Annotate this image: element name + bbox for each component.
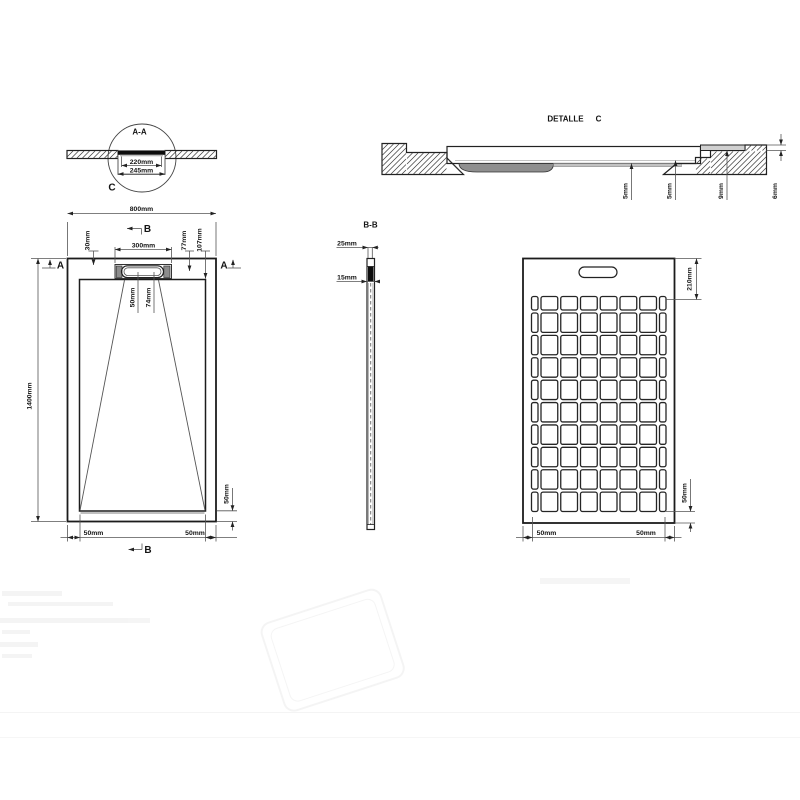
rib-cell — [660, 335, 667, 354]
dim-77-arrow — [188, 266, 192, 272]
rib-cell — [532, 313, 539, 332]
watermark-text-line — [0, 618, 150, 623]
shower-tray-drawing: A-A 220mm 245mm C DETALLE C 5mm 5mm — [0, 0, 800, 800]
drain-channel-thin — [554, 164, 682, 167]
rib-cell — [600, 297, 617, 311]
rib-cell — [532, 358, 539, 377]
dim-6mm — [767, 134, 787, 161]
rib-cell — [660, 425, 667, 444]
hatch-line — [402, 170, 406, 174]
tray-inner-floor — [80, 280, 206, 512]
rib-cell — [620, 335, 637, 354]
dim-label-30mm: 30mm — [85, 231, 92, 251]
rib-cell — [620, 297, 637, 311]
hatch-line — [763, 147, 767, 151]
rib-cell — [581, 425, 598, 444]
dim-label-9mm: 9mm — [718, 183, 725, 199]
dim-arrowhead — [231, 260, 235, 266]
hatch-line — [181, 151, 188, 158]
hatch-line — [766, 174, 767, 175]
dim-label-50mm-br: 50mm — [185, 530, 205, 537]
detail-callout-c: C — [108, 183, 115, 194]
rib-cell — [541, 358, 558, 377]
drain-slot — [579, 267, 617, 278]
dim-50-side-bv-arrows — [689, 506, 693, 529]
hatch-line — [99, 151, 106, 158]
dim-arrowhead — [689, 523, 693, 529]
dim-arrowhead — [92, 260, 96, 266]
dim-label-25mm: 25mm — [337, 240, 357, 247]
section-a-left-arrow — [48, 260, 52, 266]
dim-label-300mm: 300mm — [132, 242, 155, 249]
dim-arrowhead — [527, 536, 533, 540]
bottom-view: 210mm 50mm 50mm 50mm — [516, 259, 702, 542]
rib-cell — [581, 335, 598, 354]
rib-cell — [532, 470, 539, 489]
section-letter-b-bottom: B — [144, 545, 151, 556]
drain-body-section — [368, 267, 374, 282]
dim-arrowhead — [166, 248, 172, 252]
watermark-rule — [0, 737, 800, 738]
rib-cell — [581, 297, 598, 311]
hatch-line — [110, 151, 117, 158]
rib-cell — [600, 380, 617, 399]
dim-label-50mm-bl-bv: 50mm — [537, 530, 557, 537]
hatch-line — [755, 163, 767, 175]
rib-cell — [640, 492, 657, 511]
watermark-text-line — [540, 578, 630, 584]
dim-arrowhead — [36, 516, 40, 522]
section-letter-a-left: A — [57, 260, 64, 271]
dim-arrowhead — [206, 536, 212, 540]
rib-cell — [660, 492, 667, 511]
tray-rim-lip — [701, 145, 746, 151]
rib-cell — [541, 297, 558, 311]
rib-cell — [640, 297, 657, 311]
dim-label-50mm-side: 50mm — [224, 484, 231, 504]
hatch-line — [711, 152, 722, 163]
hatch-line — [214, 156, 217, 159]
hatch-block-right-c — [696, 159, 710, 175]
rib-cell — [600, 313, 617, 332]
hatch-line — [68, 151, 74, 157]
rib-cell — [541, 403, 558, 422]
dim-arrowhead — [779, 151, 783, 157]
rib-cell — [541, 313, 558, 332]
dim-arrowhead — [779, 140, 783, 146]
dim-arrowhead — [669, 536, 675, 540]
slope-line-left — [80, 280, 125, 511]
hatch-line — [711, 152, 717, 158]
hatch-line — [757, 146, 762, 151]
section-bb-title: B-B — [363, 221, 377, 230]
rib-cell — [532, 492, 539, 511]
bottom-view-outline — [523, 259, 675, 524]
dim-1400 — [31, 259, 66, 522]
rib-cell — [640, 447, 657, 466]
rib-cell — [561, 492, 578, 511]
hatch-line — [441, 169, 447, 175]
rib-cell — [620, 447, 637, 466]
dim-label-15mm: 15mm — [337, 274, 357, 281]
hatch-line — [116, 156, 118, 158]
hatch-line — [192, 151, 199, 158]
detail-aa-view: A-A 220mm 245mm C — [67, 124, 217, 194]
hatch-line — [727, 152, 750, 175]
hatch-block-left-b — [407, 153, 447, 174]
hatch-block-right-b — [746, 146, 766, 151]
rib-cell — [620, 425, 637, 444]
rib-cell — [561, 313, 578, 332]
rib-cell — [600, 358, 617, 377]
detail-c-dim-lines — [632, 151, 728, 201]
dim-arrowhead — [372, 246, 378, 250]
rib-cell — [541, 335, 558, 354]
hatch-line — [166, 151, 172, 157]
tray-outer-outline — [68, 259, 217, 522]
rib-cell — [581, 380, 598, 399]
hatch-line — [722, 152, 745, 175]
dim-arrowhead — [115, 248, 121, 252]
hatch-line — [711, 152, 733, 174]
dim-210 — [666, 259, 702, 300]
hatch-line — [419, 153, 440, 174]
rib-cell — [561, 403, 578, 422]
rib-cell — [660, 470, 667, 489]
hatch-line — [383, 144, 394, 155]
hatch-line — [408, 153, 429, 174]
rib-cell — [620, 358, 637, 377]
dim-107-arrow — [204, 273, 208, 279]
dim-label-800mm: 800mm — [130, 206, 153, 213]
rib-cell — [581, 470, 598, 489]
rib-cell — [532, 335, 539, 354]
rib-cell — [541, 492, 558, 511]
dim-label-5mm-1: 5mm — [623, 183, 630, 199]
dim-label-210mm: 210mm — [687, 267, 694, 290]
rib-cell — [640, 313, 657, 332]
dim-arrowhead — [375, 280, 381, 284]
dim-arrowhead — [695, 259, 699, 265]
hatch-wedge — [449, 161, 461, 173]
dim-label-74mm: 74mm — [146, 288, 153, 308]
rib-cell — [600, 470, 617, 489]
section-a-right-arrow — [231, 260, 235, 266]
watermark-rule — [0, 712, 800, 713]
watermark — [0, 578, 800, 738]
rib-cell — [532, 380, 539, 399]
section-b-marker-bottom — [129, 544, 143, 550]
dim-label-245mm: 245mm — [130, 167, 153, 174]
rib-cell — [541, 425, 558, 444]
hatch-line — [94, 151, 101, 158]
dim-arrowhead — [75, 536, 81, 540]
hatch-line — [752, 146, 757, 151]
dim-arrowhead — [48, 260, 52, 266]
rib-cell — [620, 492, 637, 511]
watermark-text-line — [0, 642, 38, 647]
rib-cell — [620, 313, 637, 332]
tray-slab-section — [447, 147, 701, 164]
hatch-line — [386, 154, 407, 175]
dim-arrowhead — [36, 259, 40, 265]
dim-arrowhead — [231, 522, 235, 528]
watermark-text-line — [2, 654, 32, 658]
rib-cell — [581, 403, 598, 422]
rib-cell — [532, 425, 539, 444]
hatch-line — [425, 153, 446, 174]
detail-aa-title: A-A — [132, 128, 146, 137]
rib-cell — [532, 447, 539, 466]
hatch-line — [383, 144, 389, 150]
hatch-right — [166, 151, 217, 158]
section-b-bottom-arrow — [129, 548, 135, 552]
rib-cell — [600, 492, 617, 511]
hatch-line — [197, 151, 204, 158]
rib-cell — [561, 335, 578, 354]
hatch-line — [407, 153, 418, 164]
watermark-product-image — [259, 587, 406, 713]
rib-cell — [620, 403, 637, 422]
dim-label-50mm-br-bv: 50mm — [636, 530, 656, 537]
dim-label-50mm-side-bv: 50mm — [682, 483, 689, 503]
watermark-text-line — [2, 630, 30, 634]
rib-cell — [660, 380, 667, 399]
slope-line-right — [159, 280, 206, 511]
hatch-line — [414, 153, 435, 174]
rib-cell — [561, 358, 578, 377]
detail-c-view: DETALLE C 5mm 5mm 9mm — [382, 115, 786, 201]
dim-30-arrow — [92, 260, 96, 266]
hatch-line — [208, 151, 215, 158]
drain-channel-section — [459, 164, 554, 173]
hatch-left — [68, 151, 118, 158]
rib-cell — [620, 380, 637, 399]
rib-cell — [541, 447, 558, 466]
rib-cell — [640, 425, 657, 444]
rib-cell — [660, 313, 667, 332]
dim-6mm-arrows — [779, 140, 783, 157]
rib-cell — [561, 425, 578, 444]
dim-label-77mm: 77mm — [181, 231, 188, 251]
rib-cell — [640, 380, 657, 399]
dim-arrowhead — [362, 280, 368, 284]
dim-arrowhead — [68, 212, 74, 216]
dim-300 — [115, 247, 172, 263]
plan-view: 50mm 74mm 800mm B 30mm 300mm — [27, 206, 242, 556]
dim-arrowhead — [127, 227, 133, 231]
detail-c-title-letter: C — [596, 115, 602, 124]
rib-cell — [541, 380, 558, 399]
dim-arrowhead — [695, 294, 699, 300]
hatch-line — [744, 152, 767, 175]
hatch-line — [383, 144, 405, 166]
rib-cell — [640, 403, 657, 422]
hatch-line — [436, 163, 447, 174]
watermark-text-line — [8, 602, 113, 606]
drain-flank-right — [164, 266, 170, 278]
rib-cell — [541, 470, 558, 489]
watermark-text-line — [2, 591, 62, 596]
rib-cell — [640, 335, 657, 354]
hatch-line — [708, 172, 710, 174]
section-letter-a-right: A — [220, 260, 227, 271]
section-b-marker-top — [127, 229, 142, 235]
rib-grid — [532, 297, 667, 512]
dim-arrowhead — [188, 266, 192, 272]
hatch-line — [760, 168, 766, 174]
hatch-line — [72, 151, 79, 158]
rib-cell — [581, 492, 598, 511]
hatch-line — [407, 153, 413, 159]
hatch-line — [186, 151, 193, 158]
rib-cell — [660, 403, 667, 422]
dim-label-50mm-bl: 50mm — [84, 530, 104, 537]
detail-c-title-word: DETALLE — [547, 115, 584, 124]
rib-cell — [561, 380, 578, 399]
rib-cell — [640, 358, 657, 377]
rib-cell — [600, 447, 617, 466]
rib-cell — [600, 403, 617, 422]
hatch-line — [397, 165, 407, 175]
dim-label-220mm: 220mm — [130, 159, 153, 166]
dim-arrowhead — [363, 246, 369, 250]
section-b-top-arrow — [127, 227, 133, 231]
technical-drawing-canvas: A-A 220mm 245mm C DETALLE C 5mm 5mm — [0, 0, 800, 800]
rib-cell — [581, 447, 598, 466]
dim-label-1400mm: 1400mm — [27, 382, 34, 409]
dim-arrowhead — [211, 212, 217, 216]
dim-label-5mm-2: 5mm — [667, 183, 674, 199]
hatch-block-left-a — [383, 144, 407, 174]
rib-cell — [532, 403, 539, 422]
rib-cell — [581, 358, 598, 377]
dim-arrowhead — [129, 548, 135, 552]
dim-arrowhead — [689, 506, 693, 512]
dim-label-6mm: 6mm — [772, 183, 779, 199]
dim-arrowhead — [68, 536, 74, 540]
hatch-block-right-a — [711, 152, 766, 175]
rib-cell — [640, 470, 657, 489]
rib-cell — [660, 447, 667, 466]
hatch-line — [733, 152, 756, 175]
rib-cell — [532, 297, 539, 311]
tray-edge-underside — [120, 155, 163, 157]
rib-cell — [600, 335, 617, 354]
hatch-line — [746, 146, 751, 151]
hatch-line — [203, 151, 210, 158]
hatch-line — [77, 151, 84, 158]
rib-cell — [581, 313, 598, 332]
rib-cell — [660, 358, 667, 377]
rib-cell — [600, 425, 617, 444]
tray-edge-profile — [118, 151, 165, 155]
section-letter-b-top: B — [144, 224, 151, 235]
rib-cell — [561, 470, 578, 489]
dim-arrowhead — [204, 273, 208, 279]
hatch-line — [83, 151, 90, 158]
dim-25 — [337, 248, 379, 259]
hatch-line — [88, 151, 95, 158]
rib-cell — [660, 297, 667, 311]
rib-cell — [620, 470, 637, 489]
dim-arrowhead — [231, 505, 235, 511]
dim-label-drain-50mm: 50mm — [130, 288, 137, 308]
dim-50-side-arrows — [231, 505, 235, 527]
dim-label-107mm: 107mm — [197, 228, 204, 251]
section-bb-view: B-B 25mm 15mm — [337, 221, 381, 530]
dim-arrowhead — [211, 536, 217, 540]
rib-cell — [561, 297, 578, 311]
rib-cell — [561, 447, 578, 466]
hatch-line — [738, 152, 761, 175]
